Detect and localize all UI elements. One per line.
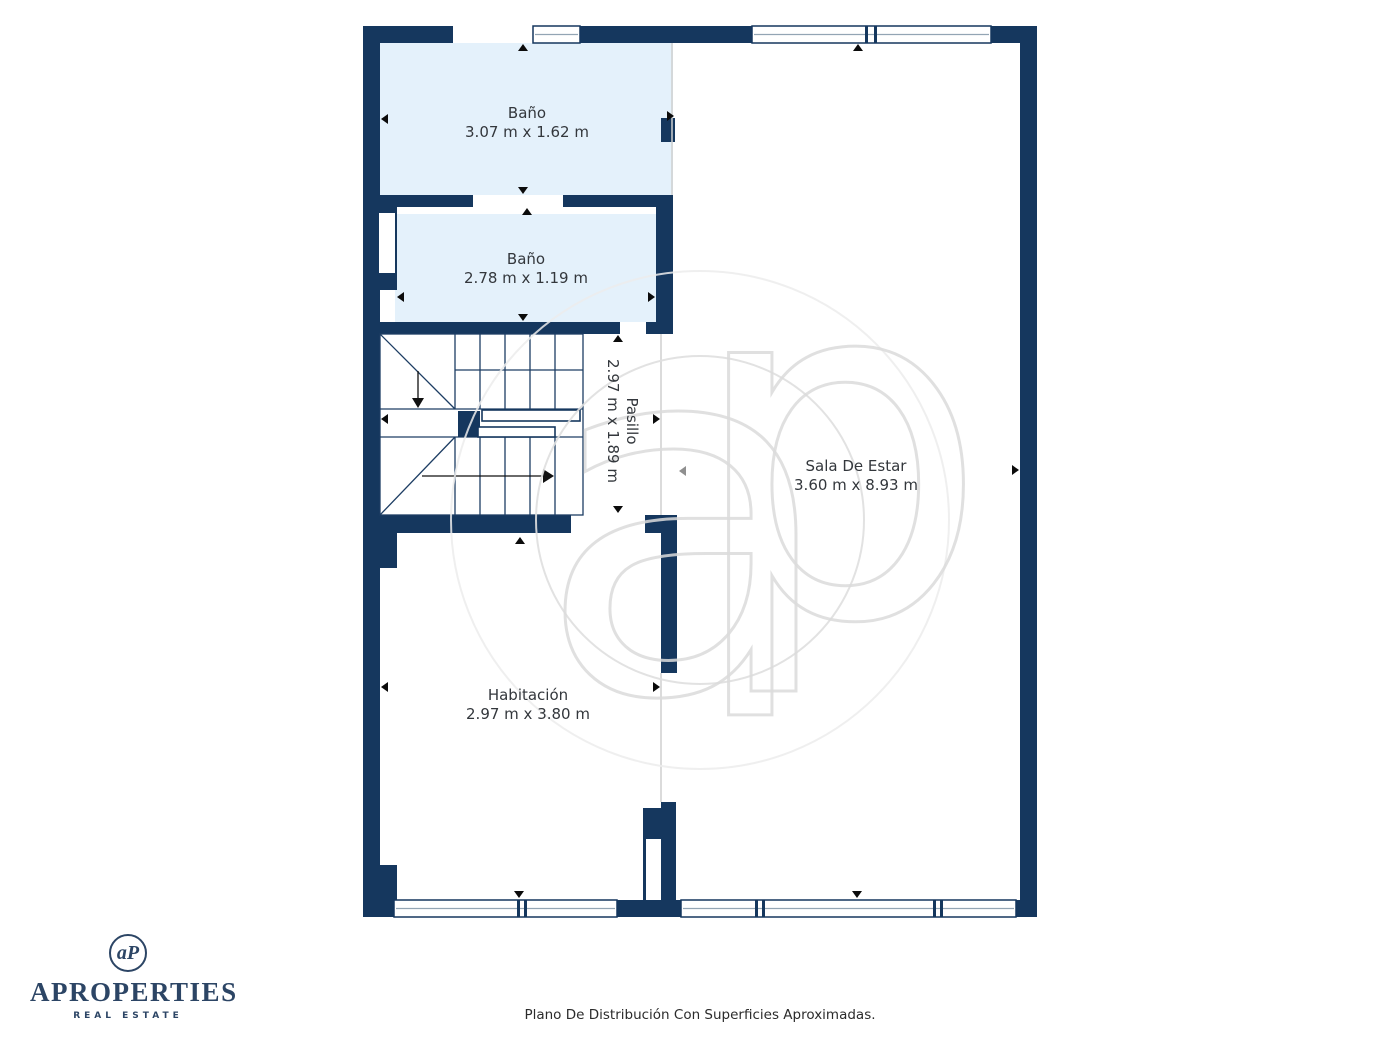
- room-name: Baño: [464, 250, 588, 269]
- floor-plan-page: a p Baño 3.07 m x 1.62 m Baño 2.78 m x 1…: [0, 0, 1400, 1050]
- room-label-sala-de-estar: Sala De Estar 3.60 m x 8.93 m: [794, 457, 918, 495]
- room-label-bano-1: Baño 3.07 m x 1.62 m: [465, 104, 589, 142]
- room-label-pasillo: Pasillo 2.97 m x 1.89 m: [603, 359, 641, 483]
- window-bottom-left: [394, 900, 617, 917]
- logo-company-name: APROPERTIES: [30, 977, 226, 1008]
- room-name: Habitación: [466, 686, 590, 705]
- room-name: Baño: [465, 104, 589, 123]
- room-dimensions: 2.97 m x 3.80 m: [466, 705, 590, 724]
- room-dimensions: 3.60 m x 8.93 m: [794, 476, 918, 495]
- room-label-habitacion: Habitación 2.97 m x 3.80 m: [466, 686, 590, 724]
- room-dimensions: 3.07 m x 1.62 m: [465, 123, 589, 142]
- window-top-large: [752, 26, 991, 43]
- logo-monogram-circle: aP: [109, 934, 147, 972]
- room-dimensions: 2.97 m x 1.89 m: [603, 359, 622, 483]
- window-bottom-right: [681, 900, 1016, 917]
- room-name: Pasillo: [622, 359, 641, 483]
- logo-tagline: REAL ESTATE: [30, 1011, 226, 1021]
- staircase: [380, 334, 583, 515]
- agency-logo: aP APROPERTIES REAL ESTATE: [30, 934, 226, 1021]
- plan-caption: Plano De Distribución Con Superficies Ap…: [524, 1007, 875, 1023]
- floor-plan-drawing: [0, 0, 1400, 1050]
- room-dimensions: 2.78 m x 1.19 m: [464, 269, 588, 288]
- window-top-small: [533, 26, 580, 43]
- room-name: Sala De Estar: [794, 457, 918, 476]
- room-label-bano-2: Baño 2.78 m x 1.19 m: [464, 250, 588, 288]
- logo-monogram: aP: [117, 942, 139, 965]
